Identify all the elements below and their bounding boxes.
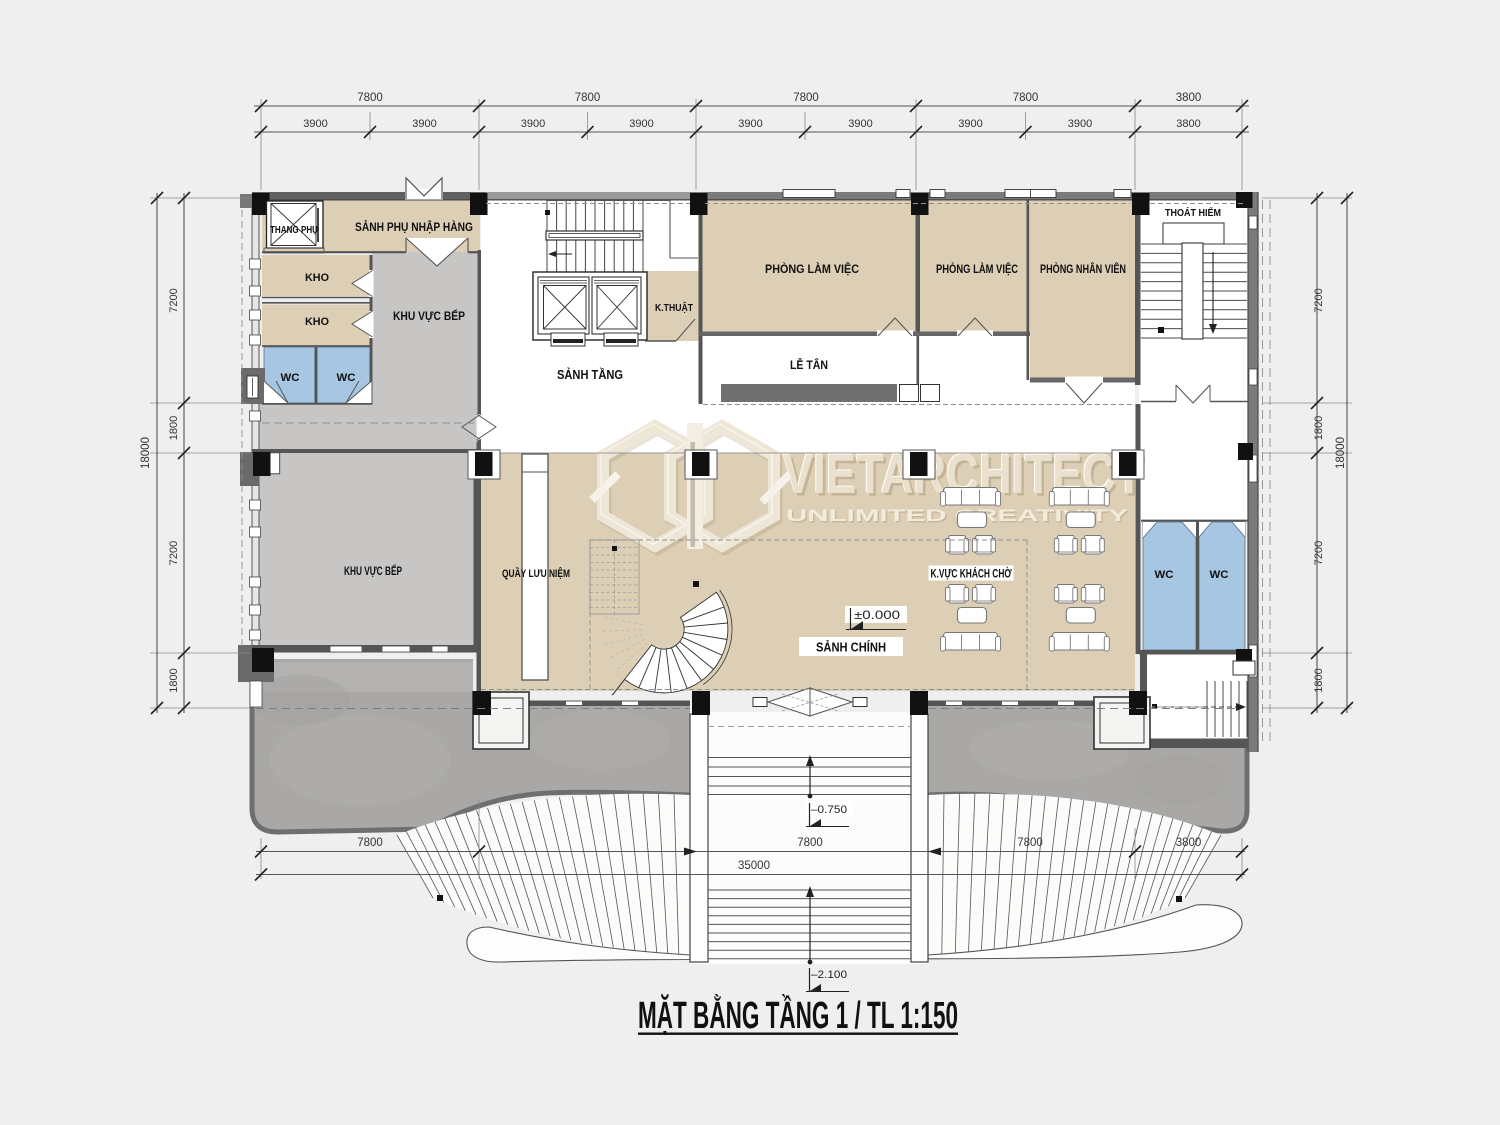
svg-text:1800: 1800 [168, 668, 180, 692]
svg-text:18000: 18000 [140, 437, 152, 469]
svg-text:3900: 3900 [629, 118, 653, 130]
svg-text:7200: 7200 [1313, 541, 1325, 565]
svg-text:SẢNH TẦNG: SẢNH TẦNG [557, 367, 623, 382]
svg-text:3900: 3900 [303, 118, 327, 130]
svg-text:7200: 7200 [168, 288, 180, 312]
svg-text:35000: 35000 [738, 860, 770, 872]
svg-text:7800: 7800 [357, 92, 383, 104]
svg-text:3800: 3800 [1176, 118, 1200, 130]
svg-text:WC: WC [1210, 569, 1229, 581]
svg-text:3800: 3800 [1176, 837, 1202, 849]
svg-text:–0.750: –0.750 [811, 804, 847, 816]
svg-text:SẢNH PHỤ NHẬP HÀNG: SẢNH PHỤ NHẬP HÀNG [355, 221, 473, 234]
svg-text:K.THUẬT: K.THUẬT [655, 301, 693, 314]
svg-text:7800: 7800 [575, 92, 601, 104]
svg-text:WC: WC [1155, 569, 1174, 581]
svg-text:WC: WC [337, 372, 356, 384]
svg-text:1800: 1800 [1313, 416, 1325, 440]
svg-text:3800: 3800 [1176, 92, 1202, 104]
svg-text:1800: 1800 [1313, 668, 1325, 692]
svg-text:K.VỰC KHÁCH CHỜ: K.VỰC KHÁCH CHỜ [931, 568, 1012, 581]
svg-text:THANG PHỤ: THANG PHỤ [270, 224, 318, 236]
svg-text:KHO: KHO [305, 316, 329, 328]
svg-text:3900: 3900 [848, 118, 872, 130]
svg-text:18000: 18000 [1335, 437, 1347, 469]
svg-text:KHU VỰC BẾP: KHU VỰC BẾP [344, 565, 402, 578]
svg-text:3900: 3900 [738, 118, 762, 130]
svg-text:7800: 7800 [797, 837, 823, 849]
svg-text:7200: 7200 [1313, 288, 1325, 312]
svg-text:1800: 1800 [168, 416, 180, 440]
svg-text:7800: 7800 [1017, 837, 1043, 849]
svg-text:7800: 7800 [357, 837, 383, 849]
svg-text:THOÁT HIỂM: THOÁT HIỂM [1165, 206, 1221, 219]
svg-text:3900: 3900 [1068, 118, 1092, 130]
svg-text:7200: 7200 [168, 541, 180, 565]
svg-text:PHÒNG LÀM VIỆC: PHÒNG LÀM VIỆC [765, 261, 859, 276]
svg-text:KHO: KHO [305, 272, 329, 284]
svg-text:SẢNH CHÍNH: SẢNH CHÍNH [816, 640, 886, 655]
svg-text:MẶT BẰNG TẦNG 1 / TL 1:150: MẶT BẰNG TẦNG 1 / TL 1:150 [638, 993, 958, 1037]
svg-text:WC: WC [281, 372, 300, 384]
svg-text:QUẦY LƯU NIỆM: QUẦY LƯU NIỆM [502, 567, 570, 580]
svg-text:3900: 3900 [412, 118, 436, 130]
svg-text:3900: 3900 [521, 118, 545, 130]
svg-text:LỄ TÂN: LỄ TÂN [790, 359, 828, 372]
svg-text:±0.000: ±0.000 [854, 610, 900, 622]
svg-text:–2.100: –2.100 [811, 969, 847, 981]
svg-text:PHÒNG NHÂN VIÊN: PHÒNG NHÂN VIÊN [1040, 263, 1126, 276]
svg-text:KHU VỰC BẾP: KHU VỰC BẾP [393, 310, 465, 323]
svg-text:PHÒNG LÀM VIỆC: PHÒNG LÀM VIỆC [936, 263, 1018, 276]
svg-text:3900: 3900 [958, 118, 982, 130]
svg-text:7800: 7800 [1013, 92, 1039, 104]
svg-text:7800: 7800 [793, 92, 819, 104]
